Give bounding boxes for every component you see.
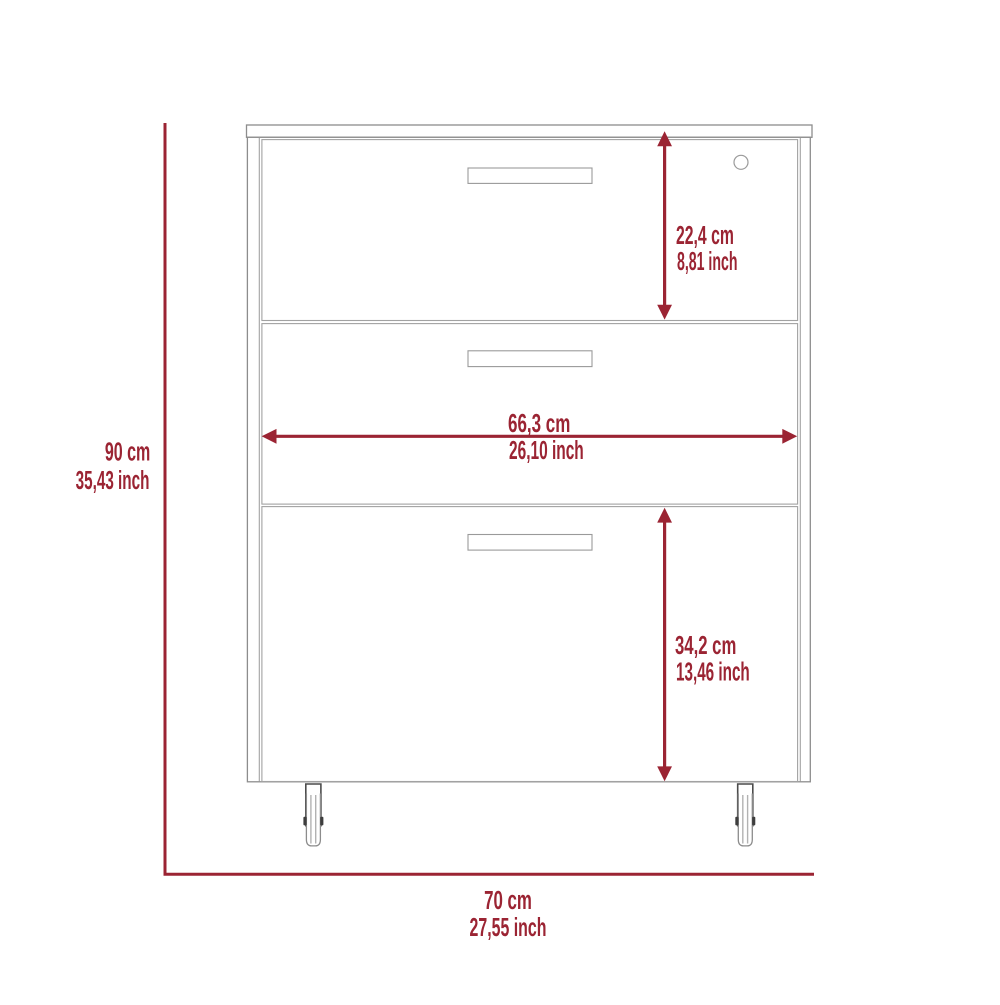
svg-text:13,46 inch: 13,46 inch <box>676 657 750 686</box>
svg-text:34,2 cm: 34,2 cm <box>675 630 736 660</box>
svg-text:26,10 inch: 26,10 inch <box>509 436 584 465</box>
svg-text:90 cm: 90 cm <box>105 436 150 466</box>
svg-text:27,55 inch: 27,55 inch <box>470 912 547 942</box>
svg-text:8,81 inch: 8,81 inch <box>677 248 737 277</box>
svg-text:66,3 cm: 66,3 cm <box>508 408 570 438</box>
svg-text:22,4 cm: 22,4 cm <box>676 221 734 250</box>
svg-text:70 cm: 70 cm <box>484 885 532 915</box>
svg-text:35,43 inch: 35,43 inch <box>76 466 150 495</box>
